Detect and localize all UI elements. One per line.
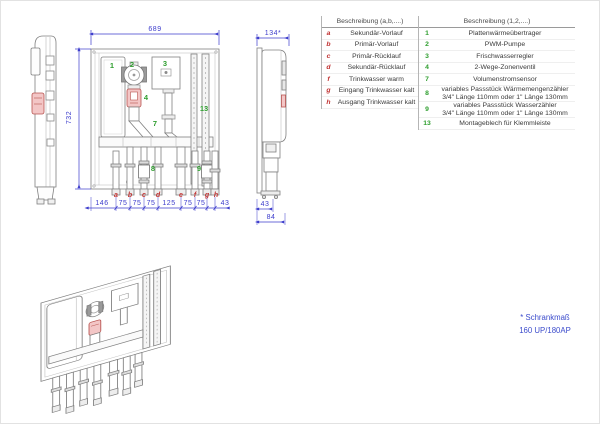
bottom-dim-0: 146 (95, 200, 108, 207)
left-profile-pump-highlight (32, 93, 44, 114)
port-label-f: f (194, 192, 196, 199)
legend-numbers-header: Beschreibung (1,2,....) (419, 16, 575, 28)
legend-row: 13Montageblech für Klemmleiste (419, 118, 575, 130)
legend-row: 1Plattenwärmeübertrager (419, 28, 575, 40)
legend-row: hAusgang Trinkwasser kalt (322, 97, 418, 109)
bottom-dim-3: 75 (147, 200, 156, 207)
left-profile-view-drawing (31, 36, 56, 204)
side-bottom-dim-outer: 84 (267, 214, 276, 221)
zone-valve-highlight (127, 89, 141, 107)
front-width-dim: 689 (148, 26, 161, 33)
side-depth-dim: 134* (265, 30, 281, 37)
cabinet-size-note: * Schrankmaß 160 UP/180AP (497, 311, 593, 338)
legend-row: gEingang Trinkwasser kalt (322, 86, 418, 98)
bottom-dim-5: 75 (184, 200, 193, 207)
legend-row: 42-Wege-Zonenventil (419, 63, 575, 75)
legend-row: cPrimär-Rücklauf (322, 51, 418, 63)
port-label-d: d (156, 192, 160, 199)
legend-letters-header: Beschreibung (a,b,....) (322, 16, 418, 28)
side-bottom-dim-inner: 43 (261, 201, 270, 208)
legend-table-numbers: Beschreibung (1,2,....) 1Plattenwärmeübe… (418, 16, 575, 130)
component-label-3: 3 (163, 59, 167, 68)
bottom-dim-1: 75 (119, 200, 128, 207)
component-label-2: 2 (130, 60, 134, 69)
legend-row: aSekundär-Vorlauf (322, 28, 418, 40)
bottom-dim-6: 75 (197, 200, 206, 207)
legend-row: 2PWM-Pumpe (419, 40, 575, 52)
port-label-b: b (128, 192, 132, 199)
legend-table-letters: Beschreibung (a,b,....) aSekundär-Vorlau… (321, 16, 418, 109)
bottom-dim-2: 75 (133, 200, 142, 207)
component-label-1: 1 (110, 61, 114, 70)
isometric-view-drawing (41, 266, 170, 421)
cabinet-size-note-line2: 160 UP/180AP (497, 324, 593, 337)
port-label-h: h (214, 192, 218, 199)
legend-row: 8variables Passstück Wärmemengenzähler3/… (419, 86, 575, 102)
legend-row: 9variables Passstück Wasserzähler3/4" Lä… (419, 102, 575, 118)
port-label-a: a (114, 192, 118, 199)
legend-row: dSekundär-Rücklauf (322, 63, 418, 75)
component-label-4: 4 (144, 93, 148, 102)
legend-row: fTrinkwasser warm (322, 74, 418, 86)
port-label-e: e (179, 192, 183, 199)
legend-row: 3Frischwasserregler (419, 51, 575, 63)
bottom-dim-4: 125 (162, 200, 175, 207)
port-label-c: c (142, 192, 146, 199)
port-label-g: g (205, 192, 209, 199)
front-height-dim: 732 (66, 111, 73, 124)
component-label-13: 13 (200, 104, 208, 113)
legend-row: 7Volumenstromsensor (419, 74, 575, 86)
legend-row: bPrimär-Vorlauf (322, 40, 418, 52)
technical-drawing-sheet: 689 732 134* 43 84 146 75 75 75 125 75 7… (0, 0, 600, 424)
component-label-8: 8 (151, 164, 155, 173)
right-profile-view-drawing (257, 48, 286, 199)
cabinet-size-note-line1: * Schrankmaß (497, 311, 593, 324)
component-label-7: 7 (153, 119, 157, 128)
bottom-dim-7: 43 (221, 200, 230, 207)
right-profile-red-mark (282, 95, 286, 107)
component-label-9: 9 (197, 164, 201, 173)
